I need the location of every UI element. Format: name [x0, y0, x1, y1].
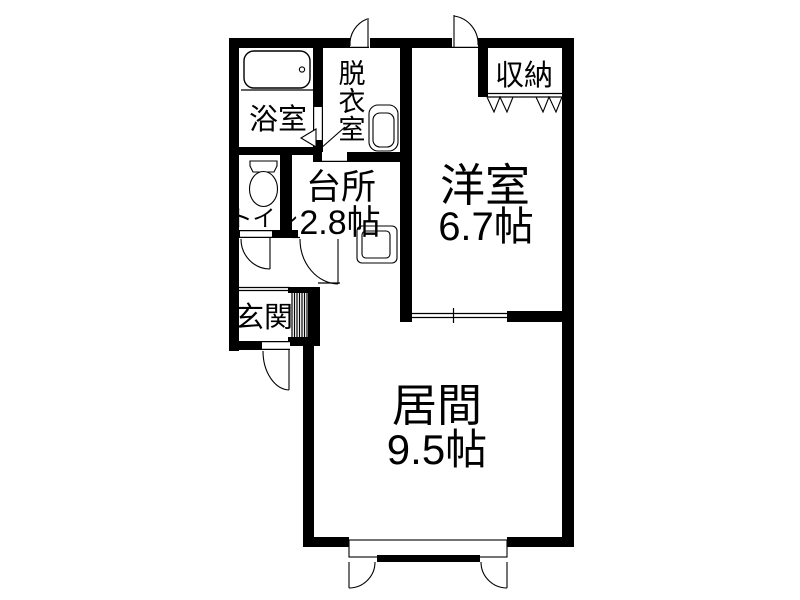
wall-top-right — [478, 38, 574, 48]
staircase-icon — [292, 287, 307, 342]
door-arc-toilet — [241, 239, 270, 269]
floor-plan-canvas: 浴室 脱 衣 室 収納 洋室 6.7帖 トイレ 台所 2.8帖 玄関 居間 9.… — [0, 0, 800, 600]
door-arc-kitchen — [300, 239, 338, 284]
opening-top-dressing — [350, 38, 369, 48]
terrace-door-arc-right — [481, 562, 507, 588]
toilet-label: トイレ — [230, 205, 299, 231]
wall-closet-left — [478, 38, 488, 97]
wall-bath-toilet — [229, 147, 323, 155]
toilet-tank-icon — [250, 161, 277, 172]
wall-bottom-right — [507, 537, 574, 547]
dressing-room-label-char1: 脱 — [339, 59, 366, 89]
wall-toilet-bottom-stub — [229, 230, 240, 238]
bathtub-faucet-icon — [299, 67, 304, 72]
wall-western-left — [400, 38, 412, 322]
wall-living-left — [303, 341, 314, 547]
terrace-window-band — [349, 540, 507, 557]
wall-dressing-kitchen-left — [313, 152, 322, 162]
opening-top-western — [452, 38, 478, 48]
wall-bottom-left — [303, 537, 349, 547]
wall-hall-piece — [272, 230, 298, 238]
wall-western-living-stub — [400, 311, 412, 322]
opening-entrance-door — [262, 341, 290, 350]
terrace-sill-bar — [377, 555, 480, 562]
living-room-label: 居間 — [392, 380, 482, 431]
closet-bifold-icon-right — [536, 97, 562, 112]
kitchen-label: 台所 — [306, 168, 376, 207]
entrance-label: 玄関 — [235, 301, 293, 334]
storage-label: 収納 — [495, 59, 553, 92]
wall-top-left — [229, 38, 350, 48]
wall-right-outer — [562, 38, 574, 547]
bathroom-label: 浴室 — [249, 103, 307, 136]
living-room-size: 9.5帖 — [387, 426, 487, 473]
terrace-door-arc-left — [349, 562, 375, 588]
terrace-doors — [349, 540, 507, 588]
dressing-room-label-char3: 室 — [339, 115, 366, 145]
wall-western-living-right — [507, 311, 562, 322]
wall-bath-dressing-upper — [313, 38, 323, 107]
dressing-room-label-char2: 衣 — [339, 87, 366, 117]
western-room-label: 洋室 — [440, 160, 530, 211]
wall-stairs-right — [308, 287, 320, 342]
floor-plan-drawing: 浴室 脱 衣 室 収納 洋室 6.7帖 トイレ 台所 2.8帖 玄関 居間 9.… — [0, 0, 800, 600]
kitchen-size: 2.8帖 — [299, 204, 380, 242]
toilet-bowl-icon — [250, 172, 278, 207]
door-arc-entrance — [263, 351, 289, 390]
closet-bifold-icon-left — [487, 97, 513, 112]
wall-entrance-bottom — [229, 341, 262, 350]
opening-dressing-door — [322, 152, 347, 162]
western-room-size: 6.7帖 — [438, 205, 534, 249]
